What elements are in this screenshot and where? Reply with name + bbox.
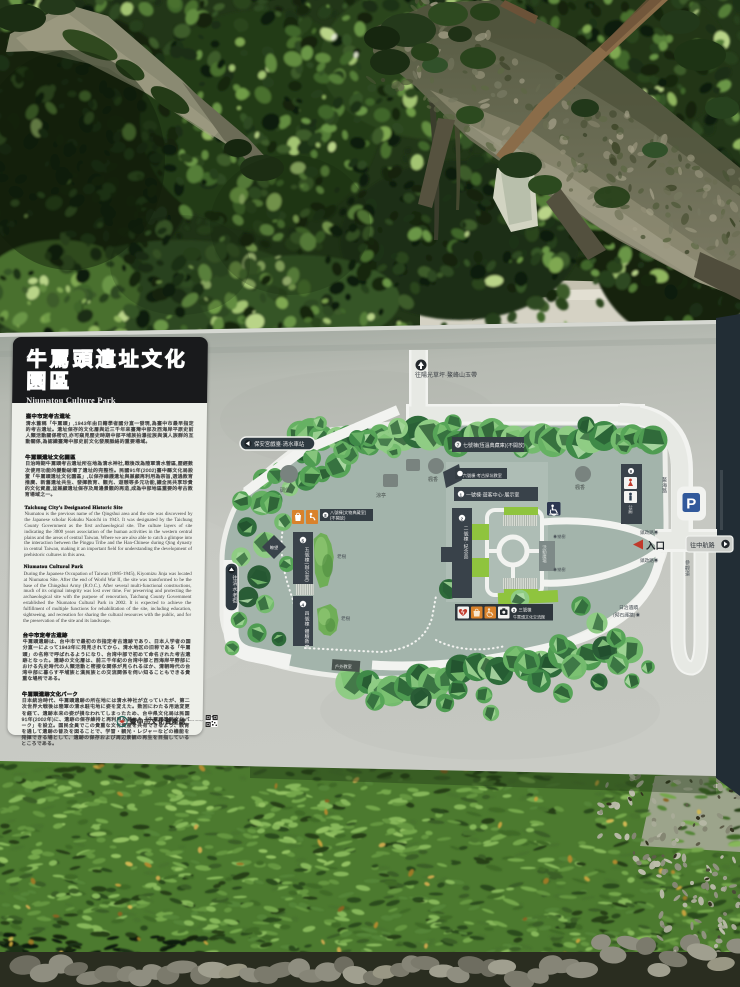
svg-text:保安宮戲臺·清水車站: 保安宮戲臺·清水車站 [254,440,305,448]
svg-text:◉欒樹: ◉欒樹 [553,533,566,540]
svg-text:一號棟·遊客中心·展示室: 一號棟·遊客中心·展示室 [466,492,519,499]
svg-text:◉欒樹: ◉欒樹 [553,566,566,573]
svg-text:老樹: 老樹 [341,615,351,622]
svg-text:戶外教室: 戶外教室 [335,663,352,670]
svg-text:二號棟·紀念品: 二號棟·紀念品 [463,526,468,560]
svg-text:牛罵頭文化交流館: 牛罵頭文化交流館 [513,614,545,620]
svg-text:公廁: 公廁 [628,505,634,515]
svg-text:(砌石護牆)◉: (砌石護牆)◉ [613,612,640,619]
svg-text:(不開放): (不開放) [330,515,346,522]
svg-text:鎮政路◉: 鎮政路◉ [640,529,659,536]
svg-text:涼亭: 涼亭 [376,492,386,499]
svg-text:1: 1 [460,492,463,497]
svg-text:往清水老街: 往清水老街 [232,574,238,604]
svg-text:2: 2 [461,516,464,521]
svg-text:參觀道: 參觀道 [684,559,690,577]
svg-text:七號棟(恆溫典藏庫)(不開放): 七號棟(恆溫典藏庫)(不開放) [463,442,525,449]
svg-text:楓香: 楓香 [575,484,585,491]
svg-text:P: P [686,496,696,513]
svg-text:楓香: 楓香 [428,476,438,483]
svg-text:鎮政路◉: 鎮政路◉ [640,557,659,564]
svg-text:活動廣場: 活動廣場 [542,544,548,565]
svg-text:鰲海路: 鰲海路 [661,476,667,494]
svg-text:日治遺蹟: 日治遺蹟 [619,604,638,611]
svg-text:往陽光草坪·鰲峰山玉帶: 往陽光草坪·鰲峰山玉帶 [415,371,477,379]
svg-text:入口: 入口 [645,541,665,552]
svg-text:老樹: 老樹 [337,553,347,560]
svg-text:三號棟: 三號棟 [519,607,533,614]
svg-text:往中航路: 往中航路 [690,542,716,550]
svg-text:四號棟·體驗教室: 四號棟·體驗教室 [304,611,309,649]
svg-text:4: 4 [302,602,305,607]
svg-text:瞭望: 瞭望 [270,544,278,551]
svg-text:5: 5 [302,538,305,543]
svg-text:六號棟·考古探坑教室: 六號棟·考古探坑教室 [463,472,502,479]
svg-text:碉堡: 碉堡 [280,487,290,494]
